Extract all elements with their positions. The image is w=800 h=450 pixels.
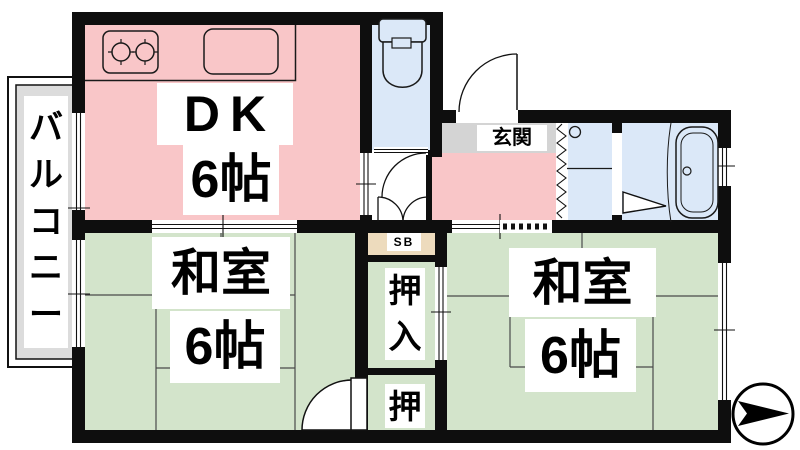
oshiire-label: 押入: [385, 268, 425, 360]
entrance-door-gap: [456, 110, 518, 123]
shoebox-label: SB: [387, 233, 421, 251]
genkan-step-dashed: [500, 220, 552, 233]
stove-icon: [103, 31, 158, 73]
wall-segment: [612, 123, 622, 133]
wall-segment: [430, 117, 442, 157]
washitsu-right-label: 和室: [509, 248, 656, 317]
genkan-label: 玄関: [477, 125, 547, 151]
bath-door-strip: [612, 133, 622, 215]
floor-plan: バルコニー DK 6帖 玄関 SB 押入 押 和室 6帖 和室 6帖: [0, 0, 800, 450]
wall-segment: [355, 220, 447, 233]
washitsu-left-size-label: 6帖: [170, 311, 280, 383]
entrance-door: [459, 54, 517, 112]
wall-segment: [430, 12, 443, 123]
balcony-label: バルコニー: [24, 96, 68, 348]
wall-segment: [72, 430, 731, 443]
hall-floor: [432, 153, 556, 220]
wall-segment: [368, 255, 435, 262]
toilet-icon: [379, 19, 426, 87]
floor-plan-drawing: [0, 0, 800, 450]
wall-segment: [426, 150, 432, 225]
sink-icon: [204, 29, 278, 74]
washitsu-left-label: 和室: [152, 237, 290, 309]
compass: [733, 384, 793, 444]
oshi-label: 押: [385, 384, 425, 428]
washitsu-right-size-label: 6帖: [525, 319, 636, 392]
wall-segment: [368, 368, 435, 375]
toilet-vestibule-doors: [378, 153, 427, 222]
dk-label: DK: [157, 83, 293, 145]
dk-size-label: 6帖: [183, 145, 279, 215]
